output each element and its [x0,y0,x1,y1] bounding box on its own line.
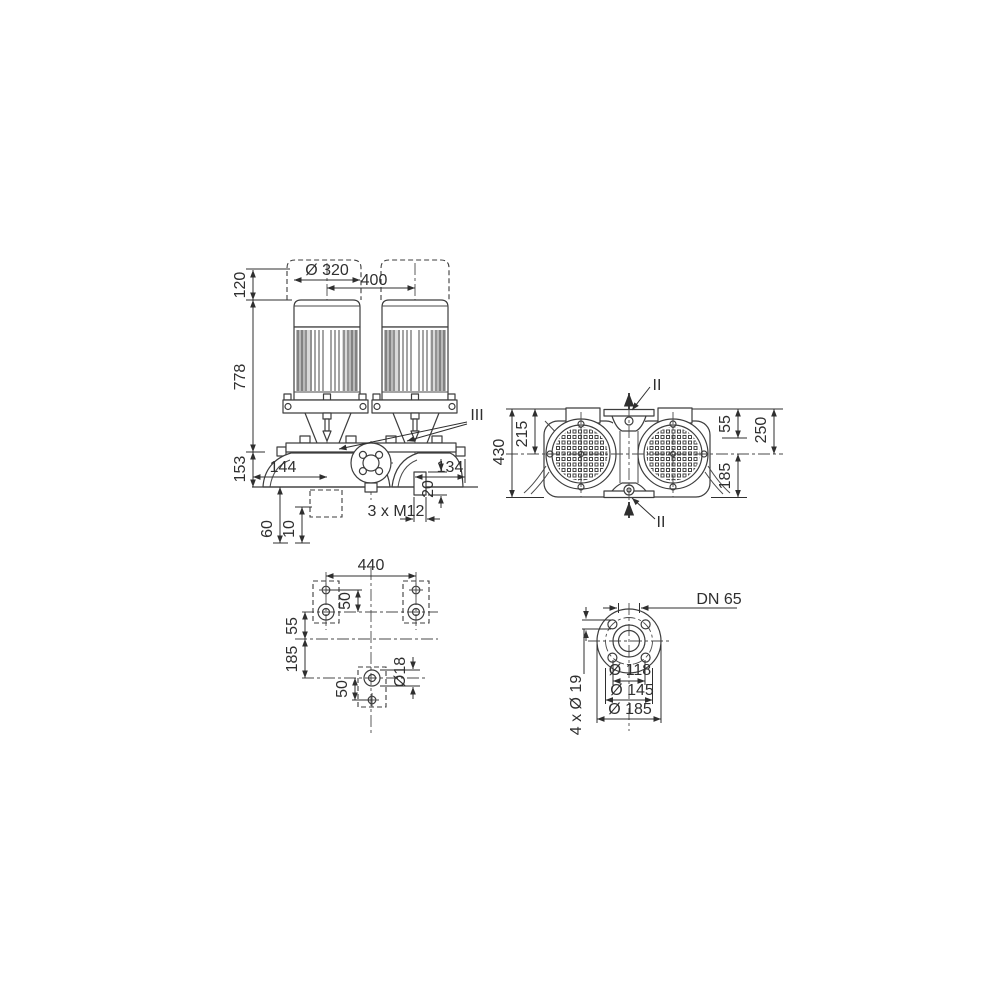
section-label-II-top: II [653,377,662,394]
dim-label-dia18: Ø18 [392,657,409,687]
centerlines-foundation [295,568,438,733]
dim-label-400: 400 [361,272,388,289]
dim-label-DN65: DN 65 [696,591,741,608]
vent-screw-right [411,413,419,441]
vent-screw-left [323,413,331,441]
dim-label-dia185: Ø 185 [608,701,652,718]
dim-label-10: 10 [281,520,298,538]
dim-label-4xdia19: 4 x Ø 19 [568,675,585,736]
dim-label-440: 440 [358,557,385,574]
dim-label-60: 60 [259,520,276,538]
dim-label-430: 430 [491,439,508,466]
top-view: 430 215 55 250 185 II II [491,377,783,531]
dim-label-dia145: Ø 145 [610,682,654,699]
dim-label-134: 134 [437,459,464,476]
dim-label-55-foundation: 55 [284,617,301,635]
dim-label-50-upper: 50 [337,592,354,610]
dim-label-dia320: Ø 320 [305,262,349,279]
dim-label-dia118: Ø 118 [609,662,652,679]
dim-label-778: 778 [232,364,249,391]
foundation-pad-dashed [310,490,342,517]
dim-label-185-foundation: 185 [284,646,301,673]
dim-label-215: 215 [514,421,531,448]
motor-left [294,300,360,400]
dim-label-185-top: 185 [717,463,734,490]
dim-label-20: 20 [420,480,437,498]
dim-label-3xM12: 3 x M12 [368,503,425,520]
pump-dimension-drawing: 120 778 153 Ø 320 400 144 134 20 3 x M12… [0,0,1000,1000]
section-label-III: III [470,407,483,424]
front-view: 120 778 153 Ø 320 400 144 134 20 3 x M12… [232,260,484,543]
dim-label-250: 250 [753,417,770,444]
section-label-II-bottom: II [657,514,666,531]
motor-right [382,300,448,400]
dim-label-50-lower: 50 [334,680,351,698]
foundation-plan-view: 440 50 55 185 50 Ø18 [284,557,438,733]
dim-label-153: 153 [232,456,249,483]
dim-label-120: 120 [232,272,249,299]
technical-drawing-sheet: 120 778 153 Ø 320 400 144 134 20 3 x M12… [0,0,1000,1000]
flange-detail-view: DN 65 Ø 118 Ø 145 Ø 185 4 x Ø 19 [568,591,742,735]
dim-label-55-top: 55 [717,415,734,433]
dim-label-144: 144 [270,459,297,476]
